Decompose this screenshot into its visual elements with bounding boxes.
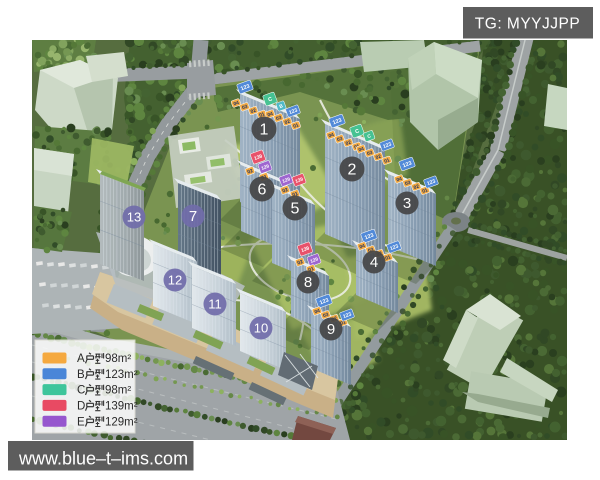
svg-text:A: A [77,353,85,365]
svg-text:B: B [77,369,85,381]
svg-text:TG: MYYJJPP: TG: MYYJJPP [475,16,580,33]
svg-text:www.blue–t–ims.com: www.blue–t–ims.com [18,449,188,469]
svg-text:98m²: 98m² [105,353,131,365]
svg-text:123m²: 123m² [105,369,138,381]
svg-text:98m²: 98m² [105,385,131,397]
svg-text:139m²: 139m² [105,401,138,413]
svg-text:C: C [77,385,85,397]
svg-text:E: E [77,416,85,428]
svg-text:129m²: 129m² [105,416,138,428]
svg-text:D: D [77,401,85,413]
